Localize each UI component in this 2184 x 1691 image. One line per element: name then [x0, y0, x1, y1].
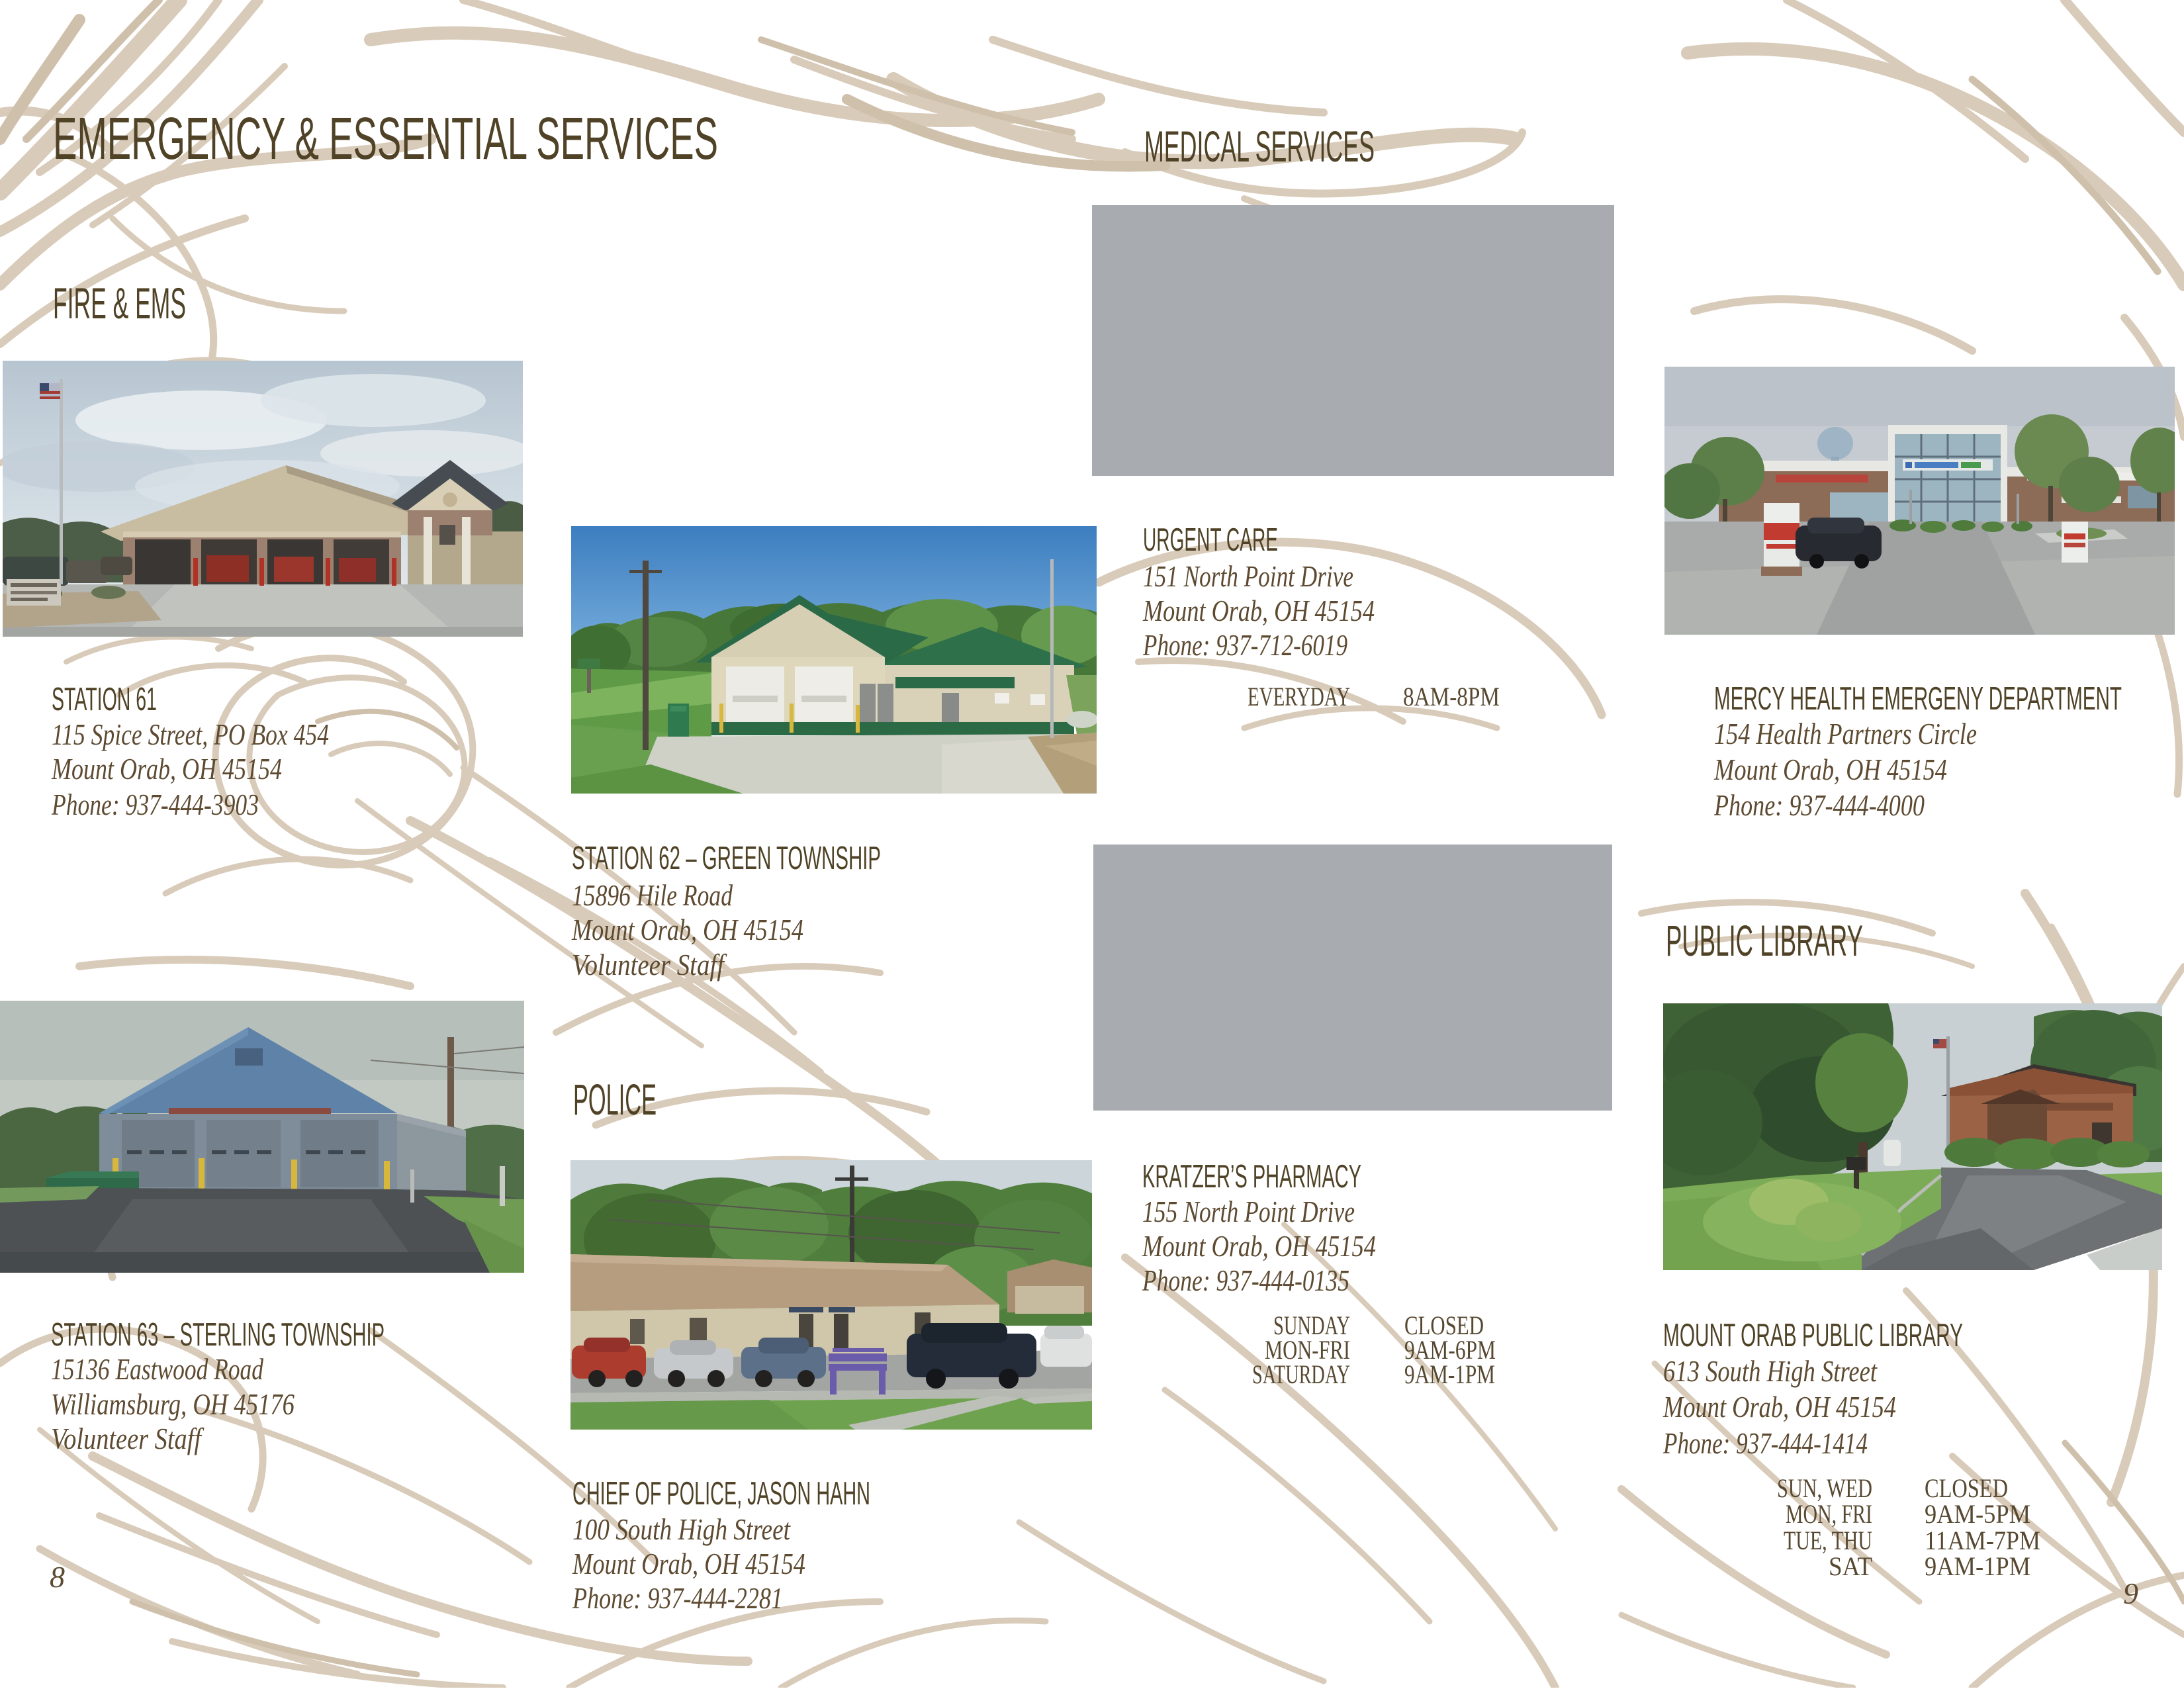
svg-text:154 Health Partners Circle: 154 Health Partners Circle — [1714, 717, 1977, 751]
svg-text:151 North Point Drive: 151 North Point Drive — [1143, 559, 1353, 593]
svg-text:STATION 63 – STERLING TOWNSHIP: STATION 63 – STERLING TOWNSHIP — [51, 1317, 385, 1353]
svg-text:POLICE: POLICE — [573, 1075, 657, 1124]
svg-text:MOUNT ORAB PUBLIC LIBRARY: MOUNT ORAB PUBLIC LIBRARY — [1663, 1318, 1963, 1353]
svg-text:SATURDAY: SATURDAY — [1252, 1359, 1350, 1389]
svg-text:Mount Orab, OH 45154: Mount Orab, OH 45154 — [1713, 753, 1947, 786]
svg-text:EMERGENCY & ESSENTIAL SERVICES: EMERGENCY & ESSENTIAL SERVICES — [53, 106, 718, 172]
svg-text:Phone: 937-444-3903: Phone: 937-444-3903 — [51, 788, 259, 821]
svg-text:PUBLIC LIBRARY: PUBLIC LIBRARY — [1666, 916, 1863, 965]
svg-text:15136 Eastwood Road: 15136 Eastwood Road — [51, 1352, 264, 1386]
svg-text:CHIEF OF POLICE, JASON HAHN: CHIEF OF POLICE, JASON HAHN — [572, 1476, 870, 1512]
svg-text:STATION 61: STATION 61 — [52, 682, 157, 717]
svg-text:Mount Orab, OH 45154: Mount Orab, OH 45154 — [51, 752, 282, 786]
svg-text:Volunteer Staff: Volunteer Staff — [51, 1422, 205, 1455]
svg-text:Mount Orab, OH 45154: Mount Orab, OH 45154 — [1142, 594, 1375, 627]
svg-text:9AM-5PM: 9AM-5PM — [1925, 1499, 2030, 1529]
svg-text:SAT: SAT — [1829, 1551, 1872, 1581]
svg-text:Mount Orab, OH 45154: Mount Orab, OH 45154 — [571, 913, 803, 946]
svg-text:Phone: 937-444-4000: Phone: 937-444-4000 — [1713, 788, 1925, 822]
svg-text:613 South High Street: 613 South High Street — [1663, 1354, 1878, 1388]
svg-text:100 South High Street: 100 South High Street — [572, 1512, 791, 1546]
svg-text:MEDICAL SERVICES: MEDICAL SERVICES — [1144, 122, 1375, 171]
svg-text:8: 8 — [50, 1560, 65, 1594]
svg-text:EVERYDAY: EVERYDAY — [1248, 682, 1350, 711]
svg-text:Mount Orab, OH 45154: Mount Orab, OH 45154 — [1662, 1390, 1896, 1424]
svg-text:MERCY HEALTH EMERGENY DEPARTME: MERCY HEALTH EMERGENY DEPARTMENT — [1714, 681, 2122, 717]
svg-text:Phone: 937-444-1414: Phone: 937-444-1414 — [1662, 1426, 1868, 1460]
svg-text:Phone: 937-444-0135: Phone: 937-444-0135 — [1142, 1263, 1349, 1297]
svg-text:9AM-1PM: 9AM-1PM — [1925, 1551, 2030, 1581]
svg-text:115 Spice Street, PO Box 454: 115 Spice Street, PO Box 454 — [52, 717, 329, 751]
svg-text:KRATZER’S PHARMACY: KRATZER’S PHARMACY — [1142, 1159, 1361, 1195]
svg-text:Mount Orab, OH 45154: Mount Orab, OH 45154 — [572, 1547, 805, 1580]
svg-text:Phone: 937-712-6019: Phone: 937-712-6019 — [1142, 628, 1347, 662]
svg-text:9AM-1PM: 9AM-1PM — [1404, 1359, 1495, 1389]
svg-text:MON, FRI: MON, FRI — [1786, 1499, 1872, 1529]
svg-text:8AM-8PM: 8AM-8PM — [1403, 682, 1500, 711]
svg-text:Phone: 937-444-2281: Phone: 937-444-2281 — [572, 1581, 783, 1615]
svg-text:15896 Hile Road: 15896 Hile Road — [572, 878, 733, 912]
svg-text:155 North Point Drive: 155 North Point Drive — [1142, 1195, 1355, 1228]
svg-text:URGENT CARE: URGENT CARE — [1143, 522, 1278, 558]
svg-text:Volunteer Staff: Volunteer Staff — [572, 948, 727, 982]
svg-text:9: 9 — [2123, 1577, 2138, 1610]
svg-text:FIRE & EMS: FIRE & EMS — [53, 279, 186, 328]
svg-text:STATION 62 – GREEN TOWNSHIP: STATION 62 – GREEN TOWNSHIP — [572, 841, 881, 876]
svg-text:Williamsburg, OH 45176: Williamsburg, OH 45176 — [51, 1387, 295, 1421]
svg-text:Mount Orab, OH 45154: Mount Orab, OH 45154 — [1142, 1229, 1376, 1263]
